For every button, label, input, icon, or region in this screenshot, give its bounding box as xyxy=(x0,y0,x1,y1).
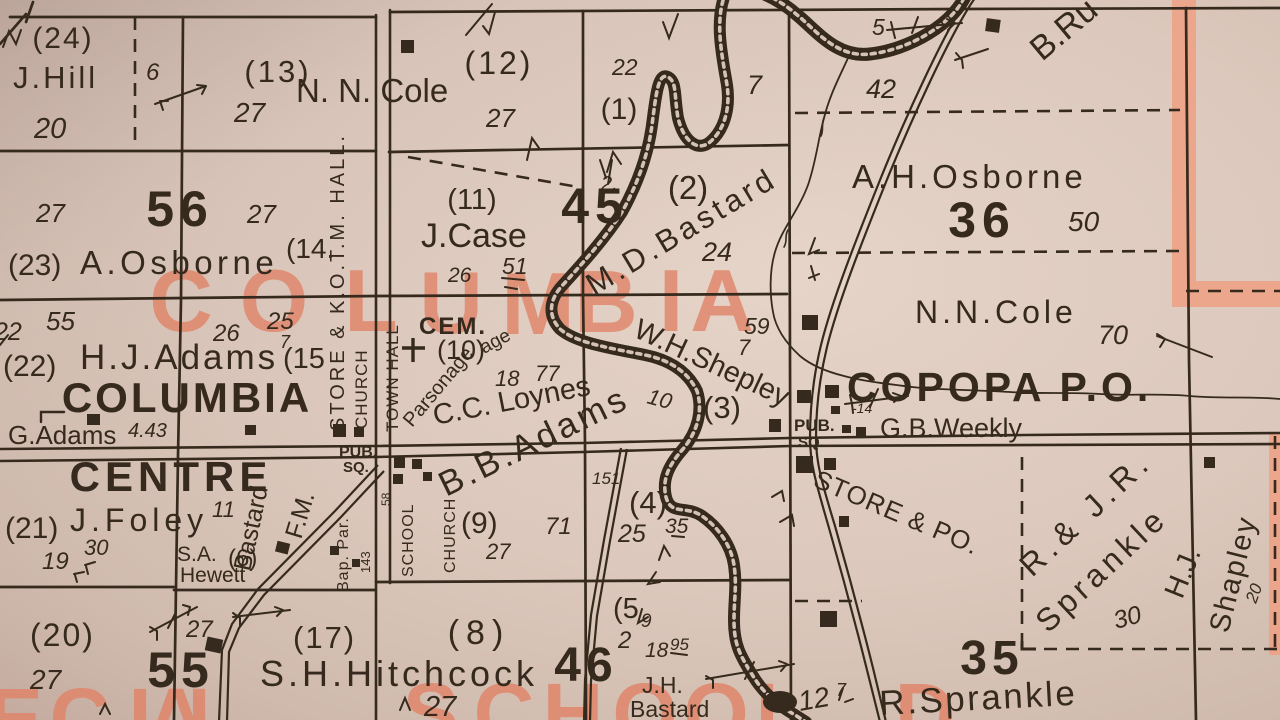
svg-text:36: 36 xyxy=(948,192,1016,248)
svg-text:7: 7 xyxy=(747,70,763,100)
svg-text:27: 27 xyxy=(246,199,277,229)
svg-text:56: 56 xyxy=(146,181,214,237)
svg-text:(24): (24) xyxy=(32,22,93,55)
svg-text:(8): (8) xyxy=(448,614,511,652)
svg-text:27: 27 xyxy=(485,539,511,564)
svg-text:27: 27 xyxy=(29,664,63,695)
svg-text:Bap. Par.: Bap. Par. xyxy=(335,517,352,592)
svg-text:SCHOOL: SCHOOL xyxy=(400,503,417,577)
svg-text:95: 95 xyxy=(670,635,689,654)
svg-text:J.H.: J.H. xyxy=(642,672,683,698)
svg-text:24: 24 xyxy=(701,237,732,267)
svg-text:26: 26 xyxy=(447,264,472,287)
svg-text:PUB.: PUB. xyxy=(794,416,835,435)
svg-text:19: 19 xyxy=(42,548,69,575)
svg-text:(11): (11) xyxy=(447,184,496,216)
svg-text:CHURCH: CHURCH xyxy=(442,498,459,573)
svg-text:(9): (9) xyxy=(461,507,498,540)
svg-text:27: 27 xyxy=(485,103,516,133)
svg-text:27: 27 xyxy=(423,691,458,720)
svg-text:(22): (22) xyxy=(3,350,56,383)
svg-text:7: 7 xyxy=(836,680,847,700)
svg-text:27: 27 xyxy=(233,97,267,128)
svg-text:5: 5 xyxy=(872,14,885,40)
svg-text:J.Hill: J.Hill xyxy=(13,60,98,95)
svg-text:42: 42 xyxy=(866,74,896,104)
svg-text:(5: (5 xyxy=(613,593,639,625)
svg-text:-14: -14 xyxy=(852,400,872,416)
svg-text:S.A.: S.A. xyxy=(177,543,217,566)
svg-text:CHURCH: CHURCH xyxy=(352,349,371,429)
svg-text:(12): (12) xyxy=(465,45,534,81)
svg-text:20: 20 xyxy=(33,113,66,145)
svg-text:25: 25 xyxy=(266,308,294,335)
svg-text:SQ.: SQ. xyxy=(798,434,824,451)
svg-text:46: 46 xyxy=(554,639,617,692)
svg-text:70: 70 xyxy=(1098,320,1128,350)
svg-text:50: 50 xyxy=(1068,206,1100,237)
svg-text:7: 7 xyxy=(738,335,751,360)
svg-text:(15: (15 xyxy=(283,343,325,375)
svg-text:Bastard: Bastard xyxy=(630,696,709,720)
svg-text:6: 6 xyxy=(146,59,160,86)
svg-text:(21): (21) xyxy=(5,512,58,545)
svg-text:58: 58 xyxy=(379,492,393,506)
svg-text:(1): (1) xyxy=(601,93,638,126)
svg-text:51: 51 xyxy=(502,253,528,279)
svg-text:22: 22 xyxy=(611,54,638,80)
svg-text:N. N. Cole: N. N. Cole xyxy=(296,72,448,109)
svg-text:9: 9 xyxy=(641,611,652,632)
svg-text:G.Adams: G.Adams xyxy=(8,420,116,450)
svg-text:22: 22 xyxy=(0,318,22,346)
svg-text:G.B.Weekly: G.B.Weekly xyxy=(880,413,1023,443)
svg-text:(23): (23) xyxy=(8,249,61,282)
svg-text:2: 2 xyxy=(617,627,631,654)
svg-text:COPOPA P.O.: COPOPA P.O. xyxy=(847,364,1152,410)
svg-text:Hewett: Hewett xyxy=(180,564,246,587)
svg-text:A.Osborne: A.Osborne xyxy=(80,244,278,281)
svg-text:55: 55 xyxy=(147,642,215,698)
svg-text:30: 30 xyxy=(84,535,109,560)
svg-text:18: 18 xyxy=(645,639,669,662)
svg-text:55: 55 xyxy=(46,306,75,336)
svg-text:STORE & K.O.T.M. HALL.: STORE & K.O.T.M. HALL. xyxy=(327,133,349,431)
svg-text:151: 151 xyxy=(592,469,620,488)
svg-text:11: 11 xyxy=(212,497,235,522)
svg-text:(17): (17) xyxy=(293,620,356,655)
svg-text:35: 35 xyxy=(665,515,689,538)
svg-text:(4): (4) xyxy=(629,485,667,520)
svg-text:N.N.Cole: N.N.Cole xyxy=(915,294,1077,330)
svg-text:H.J.Adams: H.J.Adams xyxy=(80,338,278,377)
svg-text:SQ.: SQ. xyxy=(343,459,369,476)
svg-text:27: 27 xyxy=(35,198,66,228)
svg-text:COLUMBIA: COLUMBIA xyxy=(62,374,312,421)
svg-text:S.H.Hitchcock: S.H.Hitchcock xyxy=(260,653,538,694)
svg-text:(3): (3) xyxy=(703,390,741,425)
svg-text:CENTRE: CENTRE xyxy=(70,453,273,500)
svg-text:4.43: 4.43 xyxy=(128,420,167,442)
svg-text:A.H.Osborne: A.H.Osborne xyxy=(852,158,1087,195)
svg-text:143: 143 xyxy=(358,551,373,573)
svg-text:J.Case: J.Case xyxy=(421,217,527,255)
svg-text:12: 12 xyxy=(796,681,832,717)
svg-text:45: 45 xyxy=(561,178,629,234)
svg-text:(20): (20) xyxy=(30,617,95,653)
svg-text:71: 71 xyxy=(545,513,572,540)
svg-text:25: 25 xyxy=(617,520,646,548)
svg-text:27: 27 xyxy=(185,616,214,643)
svg-text:J.Foley: J.Foley xyxy=(70,502,208,538)
